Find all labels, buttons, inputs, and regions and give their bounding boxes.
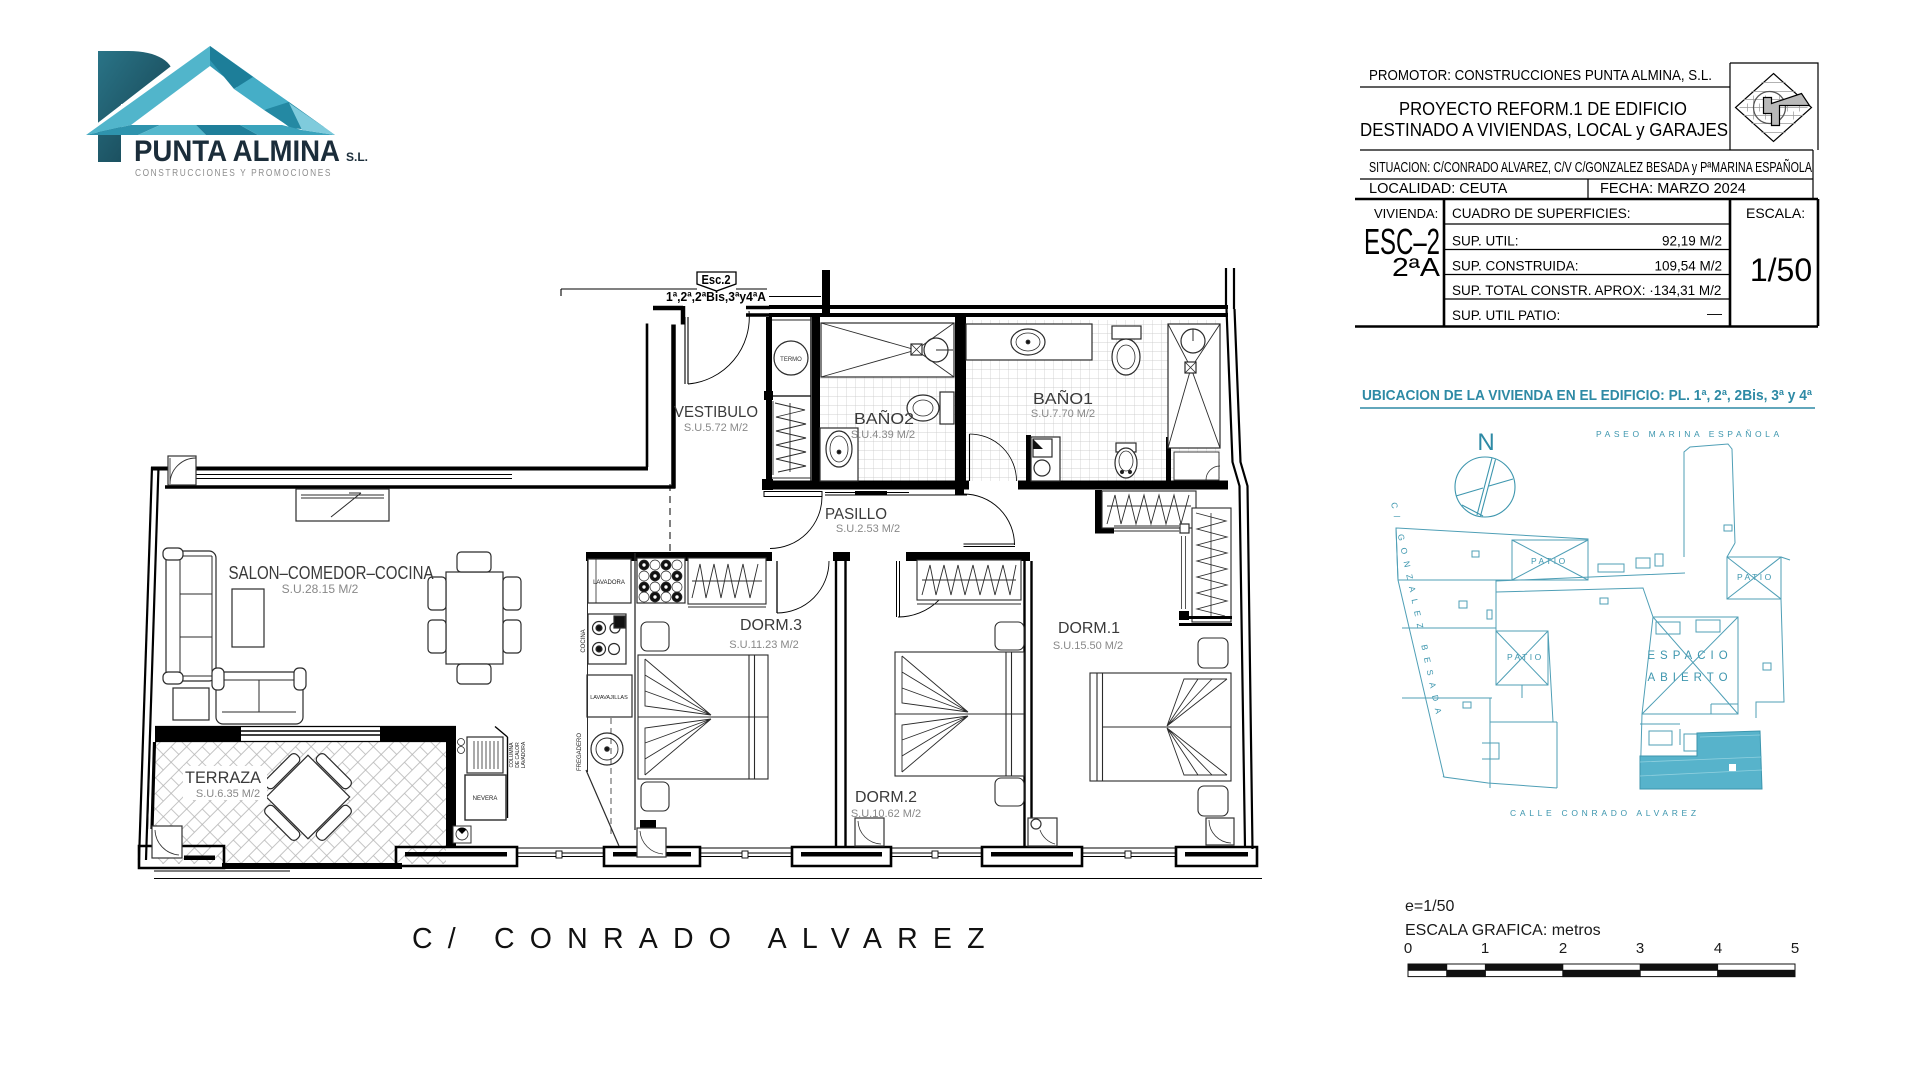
svg-text:N: N (1477, 429, 1494, 456)
svg-text:S.U.2.53 M/2: S.U.2.53 M/2 (836, 523, 900, 535)
svg-text:S.U.4.39 M/2: S.U.4.39 M/2 (851, 429, 915, 441)
svg-text:DESTINADO A VIVIENDAS, LOCAL y: DESTINADO A VIVIENDAS, LOCAL y GARAJES (1360, 119, 1728, 140)
svg-text:92,19 M/2: 92,19 M/2 (1662, 234, 1722, 249)
svg-text:S.U.15.50 M/2: S.U.15.50 M/2 (1053, 640, 1123, 652)
svg-text:COCINA: COCINA (581, 629, 587, 652)
svg-text:BAÑO1: BAÑO1 (1033, 388, 1093, 408)
svg-text:PATIO: PATIO (1531, 556, 1568, 566)
svg-text:TERMO: TERMO (780, 357, 802, 363)
svg-text:FECHA: MARZO 2024: FECHA: MARZO 2024 (1600, 181, 1746, 197)
svg-text:2ªA: 2ªA (1392, 252, 1441, 282)
svg-text:LAVAVAJILLAS: LAVAVAJILLAS (590, 695, 628, 701)
svg-text:PASEO MARINA ESPAÑOLA: PASEO MARINA ESPAÑOLA (1596, 429, 1783, 439)
svg-text:LAVADORA: LAVADORA (521, 741, 527, 768)
svg-text:1: 1 (1481, 940, 1489, 957)
svg-text:5: 5 (1791, 940, 1799, 957)
svg-text:SUP. UTIL PATIO:: SUP. UTIL PATIO: (1452, 308, 1560, 323)
svg-text:PROYECTO REFORM.1 DE EDIFICIO: PROYECTO REFORM.1 DE EDIFICIO (1399, 98, 1687, 119)
svg-text:Esc.2: Esc.2 (702, 273, 731, 287)
svg-text:VESTIBULO: VESTIBULO (674, 404, 758, 421)
svg-text:S.L.: S.L. (346, 150, 368, 164)
svg-text:UBICACION DE LA VIVIENDA E: UBICACION DE LA VIVIENDA EN EL EDIFICIO:… (1362, 388, 1813, 404)
svg-text:C/ GONZALEZ BESADA: C/ GONZALEZ BESADA (1389, 501, 1445, 721)
svg-text:––: –– (1707, 306, 1723, 321)
svg-text:ESCALA:: ESCALA: (1746, 205, 1805, 221)
svg-text:LOCALIDAD: CEUTA: LOCALIDAD: CEUTA (1369, 181, 1508, 197)
svg-text:SALON–COMEDOR–COCINA: SALON–COMEDOR–COCINA (229, 563, 434, 583)
svg-text:PATIO: PATIO (1507, 652, 1544, 662)
svg-text:1ª,2ª,2ªBis,3ªy4ªA: 1ª,2ª,2ªBis,3ªy4ªA (666, 290, 766, 304)
svg-text:e=1/50: e=1/50 (1405, 898, 1454, 915)
svg-text:SITUACION: C/CONRADO ALVAREZ,: SITUACION: C/CONRADO ALVAREZ, C/V C/GONZ… (1369, 159, 1812, 176)
svg-text:ESPACIO: ESPACIO (1647, 650, 1732, 662)
svg-text:SUP. CONSTRUIDA:: SUP. CONSTRUIDA: (1452, 259, 1579, 274)
svg-text:S.U.6.35 M/2: S.U.6.35 M/2 (196, 788, 260, 800)
svg-text:S.U.28.15 M/2: S.U.28.15 M/2 (282, 582, 359, 596)
svg-text:PROMOTOR: CONSTRUCCIONES PUNTA: PROMOTOR: CONSTRUCCIONES PUNTA ALMINA, S… (1369, 67, 1712, 84)
svg-text:S.U.7.70 M/2: S.U.7.70 M/2 (1031, 408, 1095, 420)
svg-text:CONSTRUCCIONES Y PROMOCIONES: CONSTRUCCIONES Y PROMOCIONES (135, 167, 332, 179)
svg-text:DORM.3: DORM.3 (740, 617, 802, 634)
svg-text:ESCALA GRAFICA: metros: ESCALA GRAFICA: metros (1405, 922, 1601, 939)
svg-text:BAÑO2: BAÑO2 (854, 408, 914, 428)
svg-text:3: 3 (1636, 940, 1644, 957)
svg-text:CUADRO DE SUPERFICIES:: CUADRO DE SUPERFICIES: (1452, 206, 1631, 221)
svg-text:4: 4 (1714, 940, 1722, 957)
svg-text:109,54 M/2: 109,54 M/2 (1654, 259, 1722, 274)
svg-text:FREGADERO: FREGADERO (577, 733, 583, 771)
svg-text:0: 0 (1404, 940, 1412, 957)
svg-text:S.U.10.62 M/2: S.U.10.62 M/2 (851, 808, 921, 820)
svg-text:SUP. UTIL:: SUP. UTIL: (1452, 234, 1519, 249)
svg-text:C/ CONRADO ALVAREZ: C/ CONRADO ALVAREZ (412, 923, 1000, 955)
svg-text:NEVERA: NEVERA (473, 796, 498, 802)
svg-text:PASILLO: PASILLO (825, 506, 887, 523)
svg-text:DORM.2: DORM.2 (855, 789, 917, 806)
svg-text:S.U.5.72 M/2: S.U.5.72 M/2 (684, 422, 748, 434)
svg-text:TERRAZA: TERRAZA (185, 768, 262, 787)
svg-text:PUNTA ALMINA: PUNTA ALMINA (134, 135, 340, 168)
svg-text:S.U.11.23 M/2: S.U.11.23 M/2 (729, 639, 799, 651)
svg-text:2: 2 (1559, 940, 1567, 957)
svg-text:VIVIENDA:: VIVIENDA: (1374, 206, 1438, 221)
svg-text:1/50: 1/50 (1750, 252, 1812, 288)
svg-text:DORM.1: DORM.1 (1058, 620, 1120, 637)
svg-text:LAVADORA: LAVADORA (593, 580, 625, 586)
svg-text:CALLE CONRADO ALVAREZ: CALLE CONRADO ALVAREZ (1510, 808, 1700, 818)
svg-text:ABIERTO: ABIERTO (1647, 672, 1732, 684)
svg-text:SUP. TOTAL CONSTR. APROX: ·: SUP. TOTAL CONSTR. APROX: ·134,31 M/2 (1452, 283, 1721, 298)
